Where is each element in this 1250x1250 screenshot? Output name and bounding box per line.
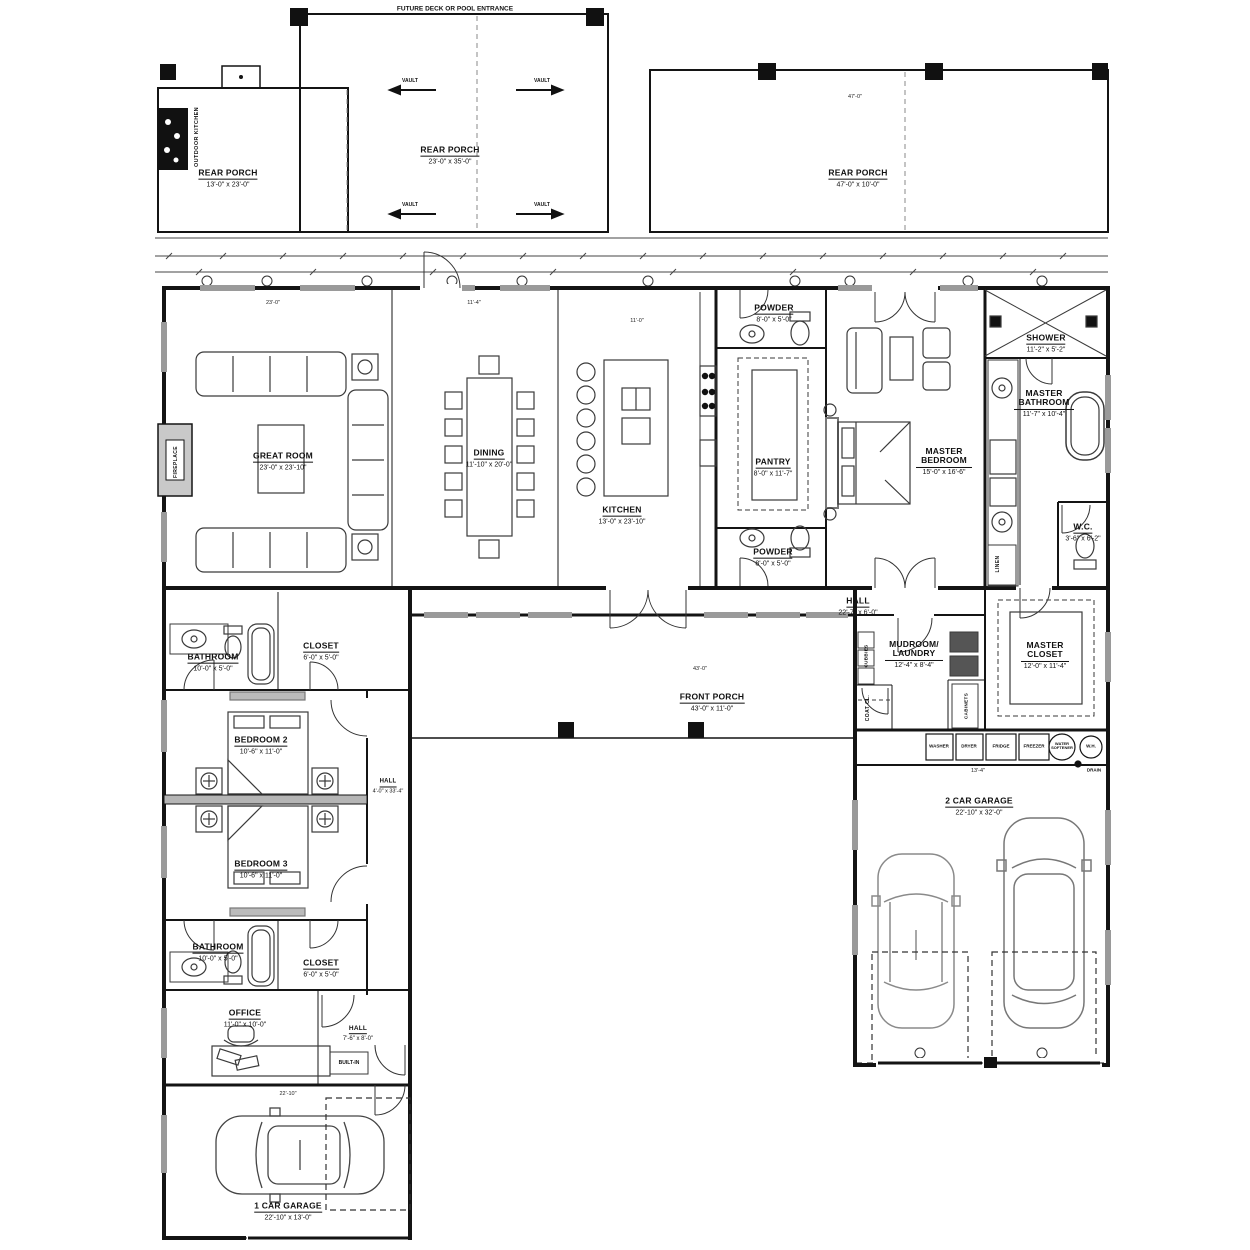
structural-posts [160, 8, 1108, 738]
master-bedroom-furniture [824, 328, 950, 520]
label-fireplace: FIREPLACE [173, 446, 179, 478]
vault-label-3: VAULT [402, 202, 418, 208]
label-rear-porch-right: REAR PORCH 47'-0" x 10'-0" [828, 163, 887, 190]
range-burners [702, 373, 715, 409]
label-dining: DINING 11'-10" x 20'-0" [466, 443, 512, 470]
garage2-cars [872, 818, 1091, 1028]
top-note: FUTURE DECK OR POOL ENTRANCE [397, 6, 513, 13]
label-mudroom-laundry: MUDROOM/ LAUNDRY 12'-4" x 8'-4" [885, 640, 943, 670]
outdoor-kitchen-grill [158, 66, 260, 170]
label-pantry: PANTRY 8'-0" x 11'-7" [754, 452, 793, 479]
vault-label-4: VAULT [534, 202, 550, 208]
label-powder-top: POWDER 8'-0" x 5'-0" [754, 298, 793, 325]
label-closet-upper: CLOSET 6'-0" x 5'-0" [303, 636, 339, 663]
dim-kitchen: 11'-0" [630, 318, 644, 324]
label-office: OFFICE 11'-0" x 10'-0" [224, 1003, 267, 1030]
label-outdoor-kitchen: OUTDOOR KITCHEN [194, 107, 200, 167]
garage2-doors [856, 1057, 1108, 1068]
dim-garage1: 22'-10" [279, 1091, 296, 1097]
label-great-room: GREAT ROOM 23'-0" x 23'-10" [253, 446, 313, 473]
garage2-parking [872, 952, 1096, 1060]
vault-label-1: VAULT [402, 78, 418, 84]
label-water-softener: WATER SOFTENER [1051, 742, 1073, 750]
label-master-closet: MASTER CLOSET 12'-0" x 11'-4" [1021, 641, 1069, 671]
label-hall-master: HALL 22'-7" x 6'-0" [838, 591, 877, 618]
label-shower: SHOWER 11'-2" x 5'-2" [1026, 328, 1065, 355]
label-rear-porch-left: REAR PORCH 13'-0" x 23'-0" [198, 163, 257, 190]
centerlines [347, 16, 905, 230]
label-wc: W.C. 3'-6" x 6'-2" [1065, 517, 1100, 544]
label-fridge: FRIDGE [992, 745, 1009, 750]
floor-plan: FUTURE DECK OR POOL ENTRANCE REAR PORCH … [0, 0, 1250, 1250]
label-garage2: 2 CAR GARAGE 22'-10" x 32'-0" [945, 791, 1013, 818]
label-linen: LINEN [995, 556, 1001, 573]
label-freezer: FREEZER [1023, 745, 1044, 750]
label-cabinets: CABINETS [964, 693, 969, 719]
garage1-car [216, 1108, 384, 1202]
kitchen-fixtures [577, 292, 716, 586]
main-walls [164, 288, 1108, 588]
lower-walls [164, 588, 1108, 1238]
floor-plan-drawing [0, 0, 1250, 1250]
label-bedroom3: BEDROOM 3 10'-6" x 11'-0" [234, 854, 287, 881]
porch-outlines [158, 14, 1108, 232]
dim-dining: 11'-4" [467, 300, 481, 306]
label-garage1: 1 CAR GARAGE 22'-10" x 13'-0" [254, 1196, 322, 1223]
front-porch-walls [410, 615, 855, 738]
dim-garage2: 13'-4" [971, 768, 985, 774]
garage1-door [230, 1232, 410, 1242]
dim-front-porch: 43'-0" [693, 666, 707, 672]
label-closet-lower: CLOSET 6'-0" x 5'-0" [303, 953, 339, 980]
label-water-heater: W.H. [1086, 745, 1096, 750]
label-powder-bottom: POWDER 8'-0" x 5'-0" [753, 542, 792, 569]
label-washer: WASHER [929, 745, 949, 750]
label-dryer: DRYER [961, 745, 977, 750]
label-kitchen: KITCHEN 13'-0" x 23'-10" [599, 500, 646, 527]
label-bathroom-upper: BATHROOM 10'-0" x 5'-0" [187, 647, 238, 674]
pantry-shelving [738, 358, 808, 510]
label-front-porch: FRONT PORCH 43'-0" x 11'-0" [680, 687, 745, 714]
label-bedroom2: BEDROOM 2 10'-6" x 11'-0" [234, 730, 287, 757]
dim-great-room: 23'-0" [266, 300, 280, 306]
label-built-in: BUILT-IN [339, 1060, 360, 1066]
garage1-parking [326, 1098, 410, 1210]
label-hall-lower: HALL 7'-6" x 8'-0" [343, 1017, 373, 1043]
label-master-bathroom: MASTER BATHROOM 11'-7" x 10'-4" [1014, 389, 1074, 419]
label-cubbies: CUBBIES [864, 644, 869, 667]
label-master-bedroom: MASTER BEDROOM 15'-0" x 16'-6" [916, 447, 972, 477]
label-hall-bedrooms: HALL 4'-0" x 33'-4" [373, 769, 404, 794]
label-rear-porch-center: REAR PORCH 23'-0" x 35'-0" [420, 140, 479, 167]
label-bathroom-lower: BATHROOM 10'-0" x 5'-0" [192, 937, 243, 964]
vault-label-2: VAULT [534, 78, 550, 84]
dim-rear-porch: 47'-0" [848, 94, 862, 100]
label-coat-closet: COAT CL. [865, 695, 871, 721]
dimension-lines [155, 238, 1108, 275]
appliance-row [926, 734, 1102, 767]
label-drain: DRAIN [1087, 768, 1101, 773]
